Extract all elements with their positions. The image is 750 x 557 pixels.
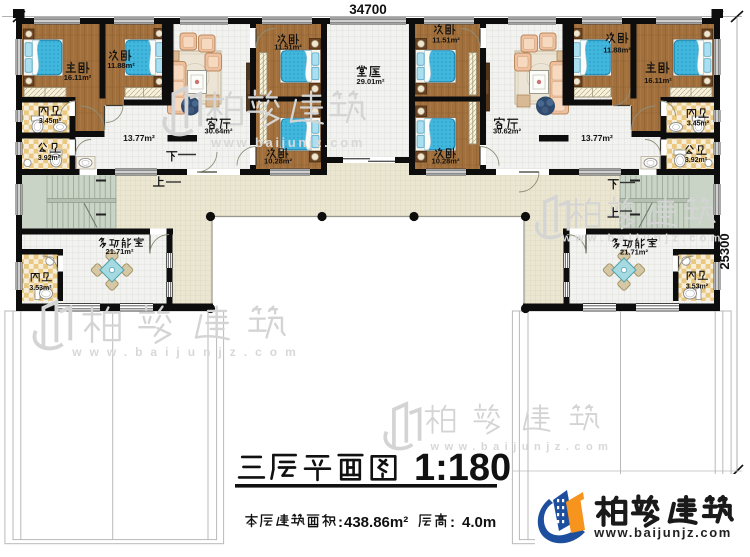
svg-text:3.45m²: 3.45m² [687,121,710,128]
svg-text:16.11m²: 16.11m² [644,76,672,85]
svg-text:34700: 34700 [349,2,387,17]
svg-text:3.45m²: 3.45m² [39,118,62,125]
svg-text:10.28m²: 10.28m² [432,157,460,166]
svg-text::: : [450,514,455,531]
svg-text:16.11m²: 16.11m² [64,73,92,82]
svg-text:29.01m²: 29.01m² [357,77,385,86]
svg-text:21.71m²: 21.71m² [620,248,648,257]
svg-text:1:180: 1:180 [414,447,511,489]
svg-text:www.baijunjz.com: www.baijunjz.com [210,135,365,150]
svg-text:13.77m²: 13.77m² [123,133,155,143]
svg-text:11.51m²: 11.51m² [274,43,302,52]
svg-text:3.53m²: 3.53m² [29,285,52,292]
svg-text:30.62m²: 30.62m² [493,127,521,136]
svg-text:10.28m²: 10.28m² [264,157,292,166]
svg-text:11.88m²: 11.88m² [603,46,631,55]
svg-text:3.53m²: 3.53m² [686,284,709,291]
svg-text:3.92m²: 3.92m² [685,157,708,164]
svg-text:21.71m²: 21.71m² [106,247,134,256]
svg-text:3.92m²: 3.92m² [38,155,61,162]
svg-text:11.88m²: 11.88m² [107,61,135,70]
svg-text:30.64m²: 30.64m² [205,127,233,136]
svg-text:438.86m²: 438.86m² [344,514,408,531]
svg-text:13.77m²: 13.77m² [581,133,613,143]
svg-text::: : [338,514,343,531]
svg-text:4.0m: 4.0m [462,514,496,531]
svg-text:11.51m²: 11.51m² [432,36,460,45]
svg-text:www.baijunjz.com: www.baijunjz.com [71,345,304,359]
svg-text:www.baijunjz.com: www.baijunjz.com [561,233,724,245]
svg-text:www.baijunjz.com: www.baijunjz.com [593,525,732,540]
